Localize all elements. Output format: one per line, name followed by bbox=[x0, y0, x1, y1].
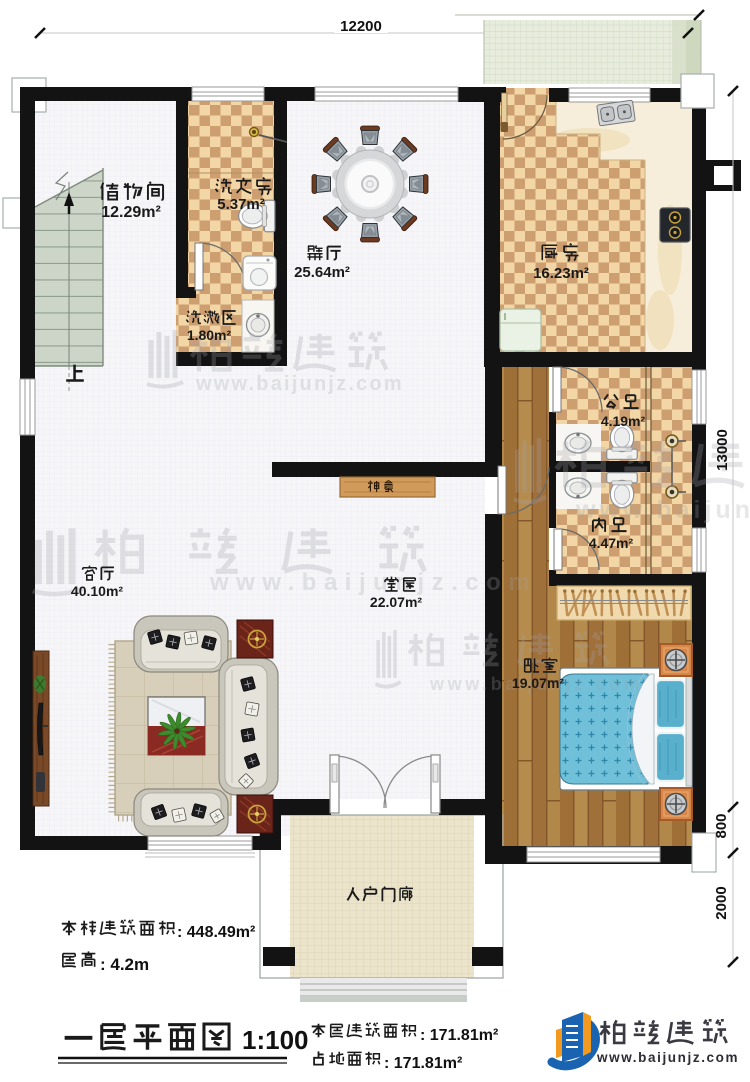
svg-text:4.19m²: 4.19m² bbox=[601, 413, 646, 429]
svg-text:800: 800 bbox=[713, 813, 730, 838]
svg-text:4.47m²: 4.47m² bbox=[589, 535, 634, 551]
svg-text:1:100: 1:100 bbox=[242, 1025, 309, 1055]
svg-text:25.64m²: 25.64m² bbox=[294, 264, 350, 281]
svg-text:www.baijunjz.com: www.baijunjz.com bbox=[596, 1050, 739, 1065]
svg-text:16.23m²: 16.23m² bbox=[533, 265, 589, 282]
svg-text:5.37m²: 5.37m² bbox=[217, 196, 265, 213]
svg-text:1.80m²: 1.80m² bbox=[187, 327, 232, 343]
svg-text:www.baijunjz.com: www.baijunjz.com bbox=[209, 569, 537, 596]
svg-text:: 171.81m²: : 171.81m² bbox=[420, 1027, 498, 1044]
svg-text:2000: 2000 bbox=[713, 886, 730, 919]
svg-text:: 4.2m: : 4.2m bbox=[100, 955, 149, 974]
svg-text:12.29m²: 12.29m² bbox=[101, 204, 161, 221]
svg-text:13000: 13000 bbox=[714, 429, 731, 471]
svg-text:12200: 12200 bbox=[340, 18, 382, 35]
svg-text:www.baijunjz.com: www.baijunjz.com bbox=[195, 373, 404, 395]
svg-text:: 171.81m²: : 171.81m² bbox=[384, 1055, 462, 1072]
svg-text:40.10m²: 40.10m² bbox=[71, 583, 123, 599]
svg-text:: 448.49m²: : 448.49m² bbox=[177, 924, 255, 941]
svg-text:19.07m²: 19.07m² bbox=[512, 675, 564, 691]
svg-text:22.07m²: 22.07m² bbox=[370, 594, 422, 610]
